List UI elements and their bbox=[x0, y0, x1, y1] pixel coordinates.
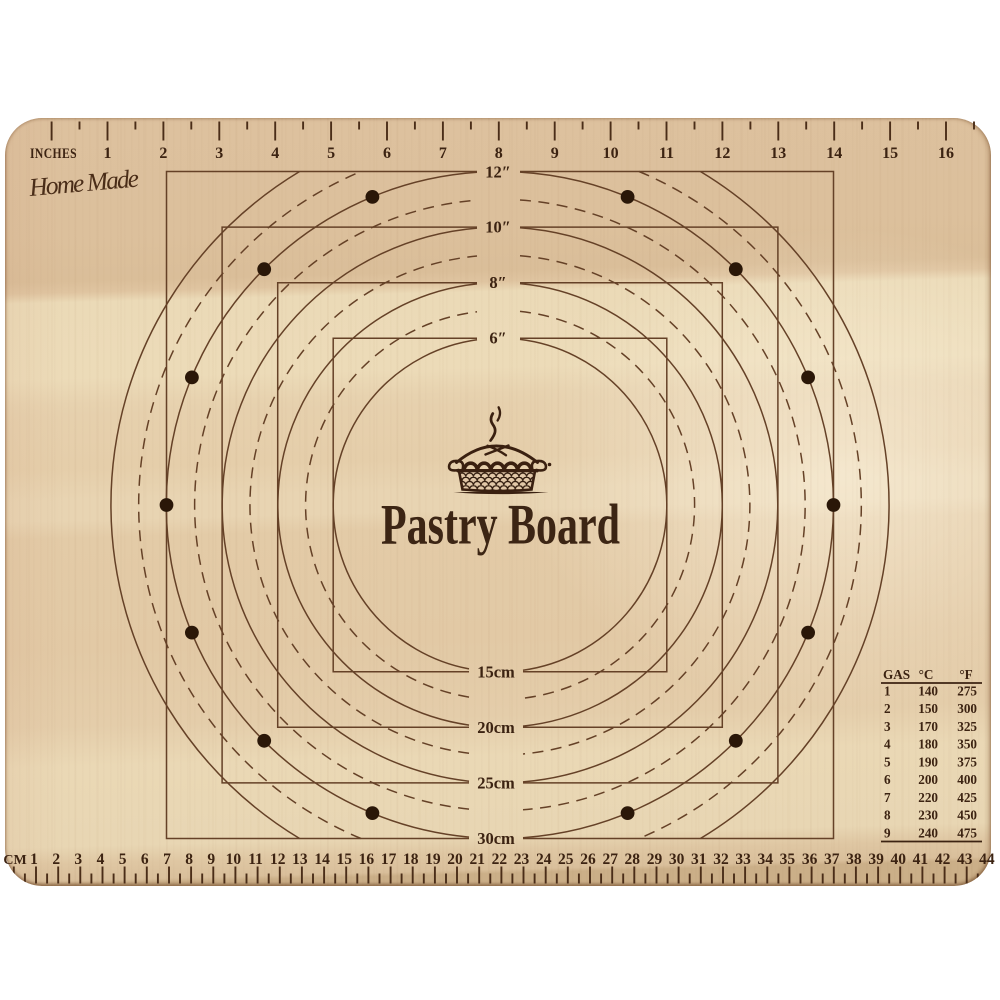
svg-text:11: 11 bbox=[248, 851, 263, 868]
svg-text:33: 33 bbox=[735, 851, 751, 868]
svg-text:3: 3 bbox=[884, 719, 891, 734]
svg-text:375: 375 bbox=[957, 754, 977, 769]
svg-text:275: 275 bbox=[957, 684, 977, 699]
svg-text:19: 19 bbox=[425, 851, 441, 868]
svg-text:26: 26 bbox=[580, 851, 596, 868]
svg-text:GAS: GAS bbox=[883, 667, 910, 682]
svg-text:140: 140 bbox=[918, 684, 938, 699]
svg-text:8″: 8″ bbox=[489, 273, 506, 292]
svg-text:25: 25 bbox=[558, 851, 574, 868]
svg-text:11: 11 bbox=[659, 145, 674, 162]
svg-text:16: 16 bbox=[359, 851, 375, 868]
svg-text:20cm: 20cm bbox=[477, 718, 515, 737]
svg-text:27: 27 bbox=[602, 851, 618, 868]
svg-text:450: 450 bbox=[957, 808, 977, 823]
svg-text:6: 6 bbox=[884, 772, 891, 787]
svg-text:150: 150 bbox=[918, 701, 938, 716]
svg-text:INCHES: INCHES bbox=[30, 146, 77, 162]
svg-text:9: 9 bbox=[207, 851, 215, 868]
svg-text:41: 41 bbox=[913, 851, 929, 868]
svg-text:240: 240 bbox=[918, 825, 938, 840]
svg-text:37: 37 bbox=[824, 851, 840, 868]
svg-text:15: 15 bbox=[882, 145, 898, 162]
svg-text:1: 1 bbox=[30, 851, 38, 868]
svg-text:6: 6 bbox=[383, 145, 391, 162]
svg-text:21: 21 bbox=[469, 851, 485, 868]
svg-text:5: 5 bbox=[884, 754, 891, 769]
svg-text:3: 3 bbox=[215, 145, 223, 162]
svg-text:1: 1 bbox=[104, 145, 112, 162]
svg-text:4: 4 bbox=[884, 737, 891, 752]
svg-text:°F: °F bbox=[959, 667, 972, 682]
svg-text:2: 2 bbox=[159, 145, 167, 162]
svg-text:475: 475 bbox=[957, 825, 977, 840]
svg-text:5: 5 bbox=[119, 851, 127, 868]
svg-text:15cm: 15cm bbox=[477, 662, 515, 681]
svg-text:400: 400 bbox=[957, 772, 977, 787]
svg-text:325: 325 bbox=[957, 719, 977, 734]
svg-text:43: 43 bbox=[957, 851, 973, 868]
svg-text:7: 7 bbox=[884, 790, 891, 805]
svg-text:42: 42 bbox=[935, 851, 951, 868]
svg-text:7: 7 bbox=[163, 851, 171, 868]
svg-text:12: 12 bbox=[714, 145, 730, 162]
svg-text:300: 300 bbox=[957, 701, 977, 716]
svg-text:40: 40 bbox=[890, 851, 906, 868]
svg-text:10: 10 bbox=[226, 851, 242, 868]
svg-text:22: 22 bbox=[492, 851, 508, 868]
svg-text:28: 28 bbox=[625, 851, 641, 868]
svg-text:24: 24 bbox=[536, 851, 552, 868]
svg-text:3: 3 bbox=[74, 851, 82, 868]
svg-text:29: 29 bbox=[647, 851, 663, 868]
svg-text:4: 4 bbox=[271, 145, 279, 162]
svg-text:200: 200 bbox=[918, 772, 938, 787]
svg-text:10″: 10″ bbox=[485, 218, 511, 237]
svg-text:15: 15 bbox=[336, 851, 352, 868]
svg-text:5: 5 bbox=[327, 145, 335, 162]
svg-text:25cm: 25cm bbox=[477, 773, 515, 792]
svg-text:9: 9 bbox=[551, 145, 559, 162]
svg-text:14: 14 bbox=[826, 145, 842, 162]
svg-text:30cm: 30cm bbox=[477, 829, 515, 848]
svg-text:36: 36 bbox=[802, 851, 818, 868]
svg-text:8: 8 bbox=[185, 851, 193, 868]
svg-text:6: 6 bbox=[141, 851, 149, 868]
svg-text:14: 14 bbox=[314, 851, 330, 868]
svg-text:425: 425 bbox=[957, 790, 977, 805]
svg-text:9: 9 bbox=[884, 825, 891, 840]
svg-text:220: 220 bbox=[918, 790, 938, 805]
svg-text:20: 20 bbox=[447, 851, 463, 868]
svg-text:44: 44 bbox=[979, 851, 995, 868]
svg-text:170: 170 bbox=[918, 719, 938, 734]
svg-text:6″: 6″ bbox=[489, 329, 506, 348]
svg-text:2: 2 bbox=[52, 851, 60, 868]
svg-text:30: 30 bbox=[669, 851, 685, 868]
svg-text:Pastry Board: Pastry Board bbox=[381, 494, 620, 557]
svg-text:12: 12 bbox=[270, 851, 286, 868]
svg-text:17: 17 bbox=[381, 851, 397, 868]
svg-text:CM: CM bbox=[3, 853, 26, 868]
svg-text:39: 39 bbox=[868, 851, 884, 868]
svg-text:Home Made: Home Made bbox=[27, 164, 140, 203]
svg-text:12″: 12″ bbox=[485, 163, 511, 182]
svg-text:16: 16 bbox=[938, 145, 954, 162]
svg-text:38: 38 bbox=[846, 851, 862, 868]
svg-text:23: 23 bbox=[514, 851, 530, 868]
svg-text:10: 10 bbox=[603, 145, 619, 162]
svg-text:2: 2 bbox=[884, 701, 891, 716]
svg-text:7: 7 bbox=[439, 145, 447, 162]
svg-text:34: 34 bbox=[758, 851, 774, 868]
svg-text:18: 18 bbox=[403, 851, 419, 868]
svg-text:230: 230 bbox=[918, 808, 938, 823]
svg-text:8: 8 bbox=[884, 808, 891, 823]
svg-text:4: 4 bbox=[97, 851, 105, 868]
svg-text:13: 13 bbox=[292, 851, 308, 868]
svg-text:190: 190 bbox=[918, 754, 938, 769]
svg-text:32: 32 bbox=[713, 851, 729, 868]
svg-text:°C: °C bbox=[919, 667, 934, 682]
svg-text:13: 13 bbox=[770, 145, 786, 162]
svg-text:31: 31 bbox=[691, 851, 707, 868]
svg-text:180: 180 bbox=[918, 737, 938, 752]
svg-text:1: 1 bbox=[884, 684, 891, 699]
svg-text:350: 350 bbox=[957, 737, 977, 752]
svg-text:8: 8 bbox=[495, 145, 503, 162]
svg-text:35: 35 bbox=[780, 851, 796, 868]
